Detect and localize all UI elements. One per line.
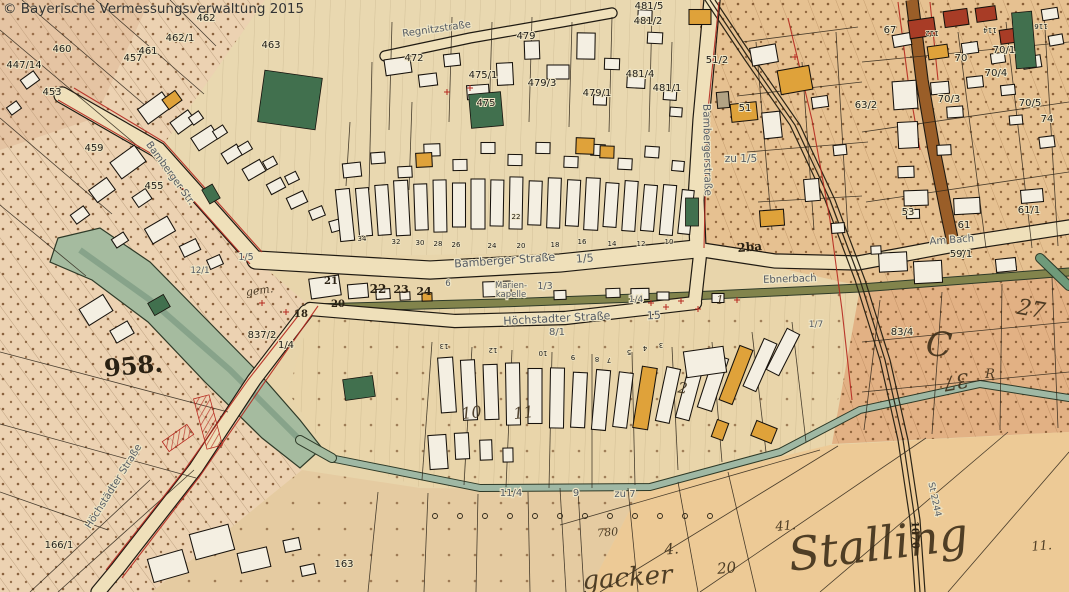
building — [524, 41, 540, 60]
street-label: Bambergerstraße — [700, 104, 714, 196]
building-rect — [683, 346, 726, 377]
building-rect — [258, 70, 323, 130]
building-rect — [481, 143, 495, 154]
building-rect — [604, 58, 619, 70]
parcel-number: 479/3 — [528, 78, 557, 89]
building-rect — [670, 107, 683, 117]
old-parcel-number: 20 — [331, 299, 345, 310]
street-label: 1/7 — [809, 320, 823, 330]
building-rect — [975, 6, 997, 23]
building-rect — [471, 179, 485, 229]
building-rect — [577, 33, 595, 59]
building-rect — [503, 448, 513, 462]
building — [433, 180, 447, 232]
building — [483, 364, 499, 419]
building — [481, 143, 495, 154]
building — [954, 197, 981, 214]
street-label: zu 7 — [614, 489, 635, 500]
building-rect — [343, 376, 376, 401]
handwritten-label: 41. — [774, 518, 797, 535]
parcel-number: 481/2 — [634, 16, 663, 27]
street-label: 1/5 — [238, 252, 253, 263]
building-rect — [622, 181, 638, 232]
building-rect — [647, 32, 663, 44]
building — [454, 433, 469, 460]
building-rect — [347, 283, 368, 299]
parcel-number: 1/4 — [278, 340, 294, 351]
building — [508, 154, 522, 165]
building-rect — [394, 180, 411, 236]
parcel-number: 67 — [884, 25, 897, 36]
building — [645, 146, 660, 158]
building — [565, 180, 580, 227]
building — [879, 252, 908, 272]
building — [490, 180, 504, 226]
building-rect — [342, 162, 361, 178]
building — [342, 162, 361, 178]
old-parcel-number: 21 — [324, 276, 338, 287]
building-rect — [375, 185, 391, 236]
building — [683, 346, 726, 377]
handwritten-label: C — [924, 324, 953, 366]
building — [937, 145, 952, 156]
field-texture — [160, 0, 700, 258]
parcel-number: 459 — [84, 143, 103, 154]
building-rect — [1041, 7, 1059, 20]
building — [300, 564, 316, 577]
handwritten-label: R — [984, 367, 995, 382]
parcel-number: 453 — [42, 87, 61, 98]
parcel-number: 481/4 — [626, 69, 655, 80]
vegetation-patch — [686, 198, 699, 226]
building — [716, 92, 729, 109]
handwritten-label: 11. — [1031, 538, 1053, 555]
building-rect — [995, 257, 1016, 272]
building — [811, 95, 828, 108]
handwritten-label: 11 — [512, 402, 534, 423]
parcel-number: 59/1 — [950, 249, 972, 260]
building — [947, 106, 964, 118]
building — [528, 181, 543, 225]
building-rect — [428, 434, 448, 469]
building — [672, 160, 685, 171]
building-rect — [762, 111, 783, 139]
house-number: 16 — [578, 238, 587, 246]
building-rect — [777, 65, 813, 94]
building — [1048, 34, 1064, 46]
parcel-number: 70 — [955, 53, 968, 64]
building — [428, 434, 448, 469]
handwritten-label: 780 — [597, 525, 619, 540]
house-number: 10 — [665, 238, 674, 246]
building — [892, 80, 918, 110]
building — [750, 44, 779, 66]
building-rect — [686, 198, 699, 226]
building-rect — [1048, 34, 1064, 46]
house-number: 114 — [983, 26, 997, 34]
building-rect — [750, 44, 779, 66]
building-rect — [966, 76, 983, 89]
house-number: 30 — [416, 239, 425, 247]
building-rect — [672, 160, 685, 171]
parcel-number: 163 — [334, 559, 353, 570]
parcel-number: 475 — [476, 98, 495, 109]
building-rect — [496, 63, 513, 86]
handwritten-label: 10 — [460, 402, 482, 423]
house-number: 10 — [539, 349, 548, 357]
building-rect — [528, 181, 543, 225]
building-rect — [606, 288, 620, 297]
street — [695, 255, 700, 300]
building-rect — [645, 146, 660, 158]
building — [762, 111, 783, 139]
building-rect — [398, 166, 413, 178]
building-rect — [453, 159, 467, 170]
house-number: 20 — [517, 242, 526, 250]
vegetation-patch — [343, 376, 376, 401]
building — [931, 81, 950, 95]
house-number: 112 — [925, 29, 938, 37]
house-number: 18 — [551, 241, 560, 249]
building-rect — [584, 178, 601, 231]
parcel-number: 51/2 — [706, 55, 728, 66]
building — [438, 357, 457, 413]
parcel-number: 481/5 — [635, 1, 664, 12]
building — [975, 6, 997, 23]
handwritten-label: gacker — [581, 560, 675, 592]
street-label: 15 — [646, 309, 661, 323]
building-rect — [833, 144, 847, 155]
building — [943, 8, 969, 27]
building-rect — [438, 357, 457, 413]
old-parcel-number: 23 — [393, 283, 408, 296]
building — [283, 537, 301, 552]
building — [398, 166, 413, 178]
building-rect — [509, 177, 523, 229]
old-parcel-number: 24 — [416, 285, 432, 298]
building — [371, 152, 386, 164]
building — [1020, 189, 1043, 204]
building — [564, 156, 578, 167]
house-number: 12 — [637, 240, 646, 248]
parcel-number: 70/4 — [985, 68, 1007, 79]
building — [1001, 84, 1016, 95]
building — [600, 146, 614, 158]
building-rect — [947, 106, 964, 118]
parcel-number: 837/2 — [248, 330, 277, 341]
building — [927, 44, 949, 60]
parcel-number: 53 — [902, 207, 915, 218]
building-rect — [1001, 84, 1016, 95]
building — [995, 257, 1016, 272]
building — [898, 166, 914, 178]
building-rect — [433, 180, 447, 232]
building — [647, 32, 663, 44]
building-rect — [1009, 115, 1023, 125]
building-rect — [1020, 189, 1043, 204]
house-number: 13 — [440, 342, 449, 350]
building-rect — [804, 178, 821, 201]
building — [347, 283, 368, 299]
building-rect — [565, 180, 580, 227]
old-parcel-number: 22 — [370, 282, 387, 296]
parcel-number: 51 — [739, 103, 752, 114]
house-number: 26 — [452, 241, 461, 249]
building-rect — [576, 138, 595, 155]
parcel-number: 463 — [261, 40, 280, 51]
building-rect — [453, 183, 466, 227]
parcel-number: 460 — [52, 44, 71, 55]
parcel-number: 455 — [144, 181, 163, 192]
street-label: 9 — [573, 488, 579, 499]
street-label: 11/4 — [500, 488, 522, 499]
building-rect — [418, 73, 437, 87]
building-rect — [943, 8, 969, 27]
house-number: 8 — [595, 355, 599, 363]
building — [453, 183, 466, 227]
building — [913, 260, 942, 283]
building — [418, 73, 437, 87]
building-rect — [483, 364, 499, 419]
building — [618, 158, 633, 170]
parcel-number: 70/1 — [993, 45, 1015, 56]
building-rect — [657, 292, 669, 300]
copyright-watermark: © Bayerische Vermessungsverwaltung 2015 — [3, 1, 304, 17]
street-label: 6 — [445, 279, 450, 289]
building-rect — [898, 166, 914, 178]
building — [536, 142, 550, 153]
street-label: kapelle — [496, 290, 527, 300]
building-rect — [904, 190, 929, 206]
building — [1041, 7, 1059, 20]
street-label: Ebnerbach — [763, 273, 817, 286]
house-number: 32 — [392, 238, 401, 246]
parcel-number: 70/3 — [938, 94, 960, 105]
building — [416, 153, 433, 168]
building — [549, 368, 564, 428]
house-number: 3 — [659, 341, 663, 349]
building — [509, 177, 523, 229]
building-rect — [480, 440, 493, 460]
building — [547, 178, 562, 228]
building — [584, 178, 601, 231]
house-number: 9 — [571, 353, 575, 361]
parcel-number: 63/2 — [855, 100, 877, 111]
house-number: 22 — [512, 213, 521, 221]
building-rect — [759, 209, 784, 227]
building — [622, 181, 638, 232]
building-rect — [831, 223, 845, 234]
building-rect — [811, 95, 828, 108]
parcel-number: 462/1 — [166, 33, 195, 44]
building — [394, 180, 411, 236]
building — [670, 107, 683, 117]
building-rect — [536, 142, 550, 153]
building — [833, 144, 847, 155]
building — [966, 76, 983, 89]
building-rect — [603, 183, 619, 228]
street-label: zu 1/5 — [725, 153, 757, 165]
parcel-number: 481/1 — [653, 83, 682, 94]
house-number: 116 — [1034, 22, 1048, 30]
building — [689, 10, 711, 25]
parcel-number: 61/1 — [1018, 205, 1040, 216]
parcel-number: 74 — [1041, 114, 1054, 125]
street-label: 1/5 — [575, 251, 594, 265]
building-rect — [508, 154, 522, 165]
building — [547, 65, 569, 79]
building-rect — [897, 121, 918, 148]
parcel-number: 83/4 — [891, 327, 913, 338]
handwritten-label: 1 — [716, 293, 724, 307]
handwritten-label: 20 — [715, 558, 737, 578]
building — [897, 121, 918, 148]
building — [657, 292, 669, 300]
building-rect — [416, 153, 433, 168]
building — [831, 223, 845, 234]
building-rect — [547, 65, 569, 79]
handwritten-label: 37 — [941, 368, 971, 396]
street-label: 1/3 — [537, 281, 552, 292]
parcel-number: 475/1 — [469, 70, 498, 81]
building-rect — [300, 564, 316, 577]
map-viewport[interactable]: 958.2ba2122232420181070Stallinggackergem… — [0, 0, 1069, 592]
building-rect — [549, 368, 564, 428]
house-number: 28 — [434, 240, 443, 248]
house-number: 7 — [607, 356, 611, 364]
building — [503, 448, 513, 462]
building — [577, 33, 595, 59]
handwritten-label: 4. — [663, 539, 680, 558]
building — [414, 184, 429, 230]
building — [804, 178, 821, 201]
house-number: 34 — [358, 235, 367, 243]
parcel-number: 479 — [516, 31, 535, 42]
building — [576, 138, 595, 155]
street-label: 1/4 — [629, 295, 644, 305]
building-rect — [913, 260, 942, 283]
building — [571, 372, 588, 428]
building — [603, 183, 619, 228]
building-rect — [1039, 136, 1055, 149]
building-rect — [954, 197, 981, 214]
building — [604, 58, 619, 70]
building — [453, 159, 467, 170]
vegetation-patch — [258, 70, 323, 130]
building-rect — [524, 41, 540, 60]
building — [777, 65, 813, 94]
building — [480, 440, 493, 460]
building-rect — [689, 10, 711, 25]
building — [443, 53, 460, 67]
old-parcel-number: 2ba — [737, 239, 763, 255]
building-rect — [414, 184, 429, 230]
parcel-number: 457 — [123, 53, 142, 64]
house-number: 24 — [488, 242, 497, 250]
building-rect — [927, 44, 949, 60]
building-rect — [600, 146, 614, 158]
building-rect — [716, 92, 729, 109]
building-rect — [892, 80, 918, 110]
building-rect — [618, 158, 633, 170]
building-rect — [564, 156, 578, 167]
parcel-number: 166/1 — [45, 540, 74, 551]
street-label: 8/1 — [549, 327, 565, 338]
old-parcel-number: 958. — [103, 349, 164, 383]
building-rect — [931, 81, 950, 95]
parcel-number: 70/5 — [1019, 98, 1041, 109]
building — [759, 209, 784, 227]
building-rect — [283, 537, 301, 552]
building — [375, 185, 391, 236]
cadastral-map: 958.2ba2122232420181070Stallinggackergem… — [0, 0, 1069, 592]
parcel-number: 447/14 — [6, 60, 41, 71]
parcel-number: 472 — [404, 53, 423, 64]
building-rect — [879, 252, 908, 272]
house-number: 14 — [608, 240, 617, 248]
building-rect — [547, 178, 562, 228]
street-label: 12/1 — [190, 266, 209, 276]
building — [606, 288, 620, 297]
handwritten-label: 27 — [1014, 295, 1047, 325]
building — [1009, 115, 1023, 125]
building-rect — [937, 145, 952, 156]
building — [904, 190, 929, 206]
parcel-number: 61 — [958, 220, 971, 231]
building-rect — [371, 152, 386, 164]
building-rect — [571, 372, 588, 428]
parcel-number: 479/1 — [583, 88, 612, 99]
building — [554, 290, 566, 299]
building-rect — [490, 180, 504, 226]
building-rect — [454, 433, 469, 460]
building — [471, 179, 485, 229]
building — [496, 63, 513, 86]
building — [871, 246, 881, 255]
old-parcel-number: 18 — [294, 309, 308, 320]
building-rect — [554, 290, 566, 299]
building-rect — [443, 53, 460, 67]
building-rect — [871, 246, 881, 255]
house-number: 12 — [489, 346, 498, 354]
house-number: 4 — [642, 344, 647, 352]
house-number: 5 — [627, 348, 631, 356]
building — [1039, 136, 1055, 149]
